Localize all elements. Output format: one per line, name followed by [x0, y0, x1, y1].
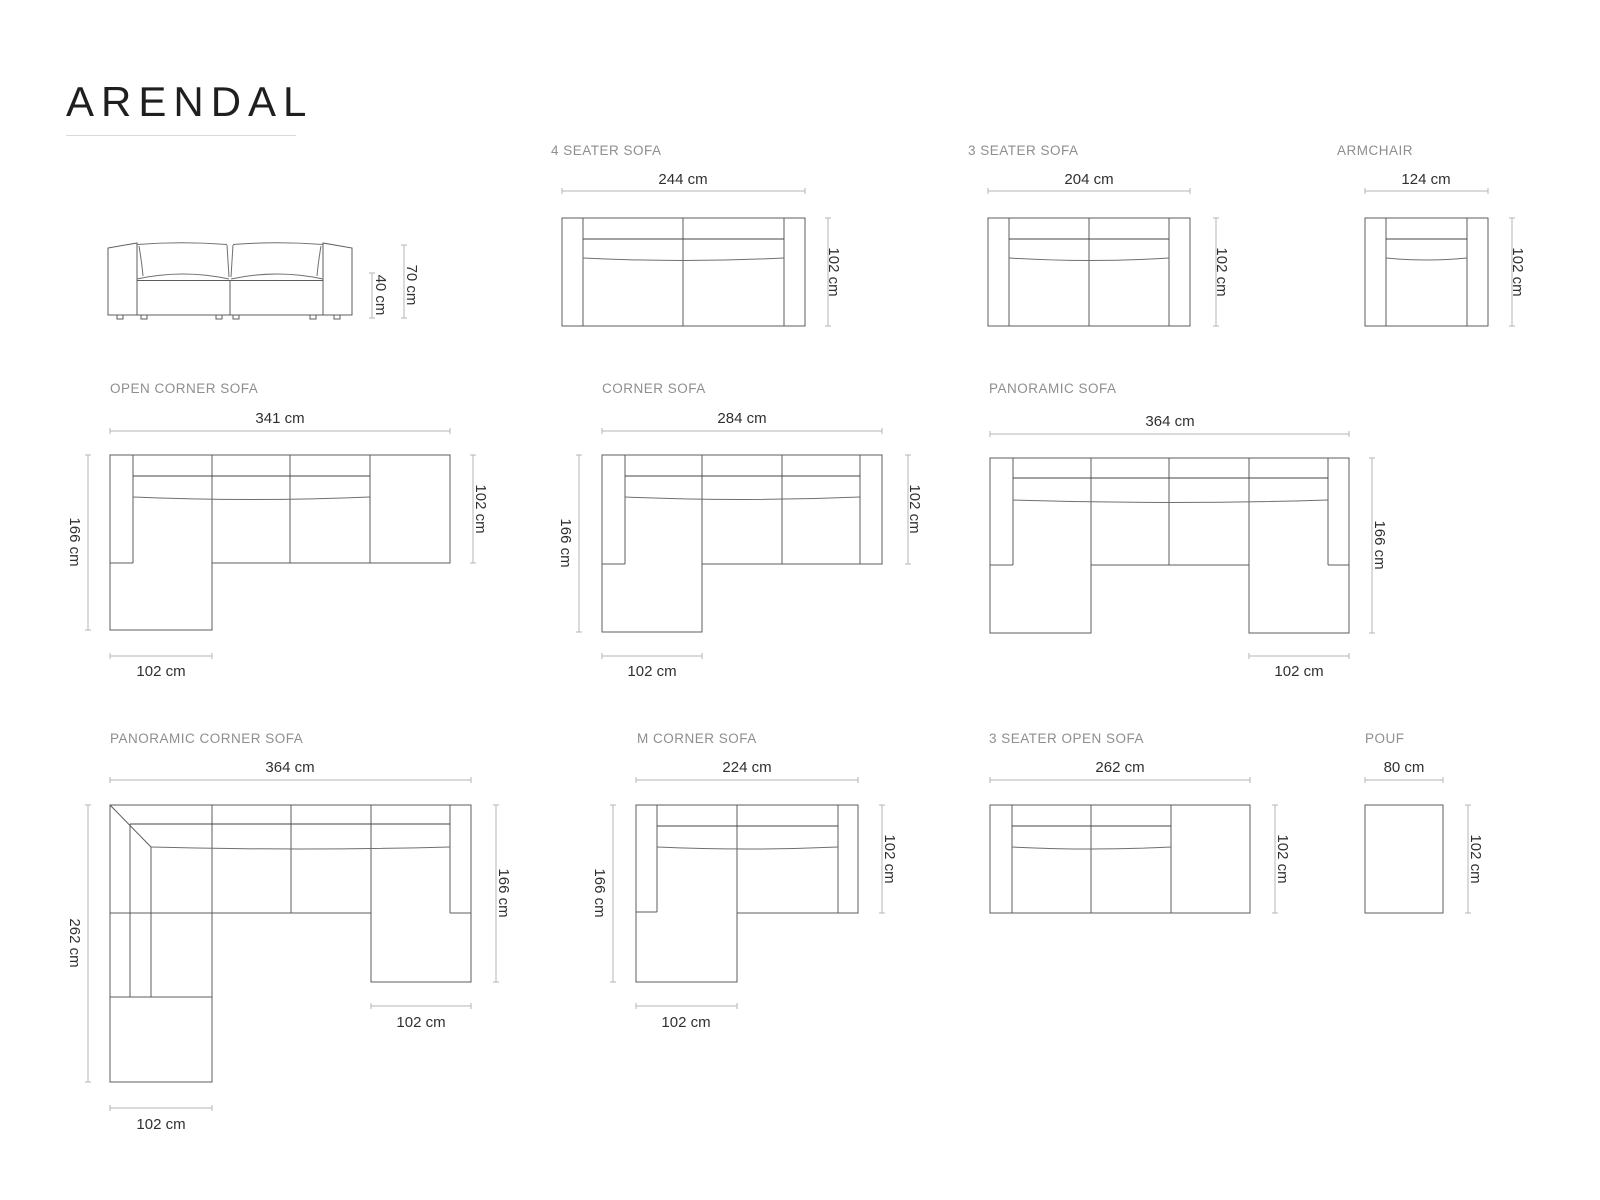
front-back-cushion-sides: [139, 246, 321, 276]
panoramic-corner-width-label: 364 cm: [265, 759, 314, 776]
diagram-front-elevation: 40 cm 70 cm: [108, 243, 420, 319]
corner-width-label: 284 cm: [717, 410, 766, 427]
three-seater-open-title: 3 SEATER OPEN SOFA: [989, 731, 1144, 746]
armchair-arms: [1386, 218, 1467, 326]
diagram-corner-sofa: CORNER SOFA 284 cm 166 cm 102 cm 102 cm: [557, 381, 923, 680]
panoramic-title: PANORAMIC SOFA: [989, 381, 1117, 396]
open-corner-chaise-label: 102 cm: [136, 663, 185, 680]
m-corner-outline: [636, 805, 858, 982]
open-corner-title: OPEN CORNER SOFA: [110, 381, 258, 396]
corner-depth-label: 102 cm: [906, 484, 923, 533]
corner-total-depth-label: 166 cm: [557, 518, 574, 567]
four-seater-arms-and-divider: [583, 218, 784, 326]
panoramic-arms-and-dividers: [990, 458, 1349, 565]
panoramic-corner-title: PANORAMIC CORNER SOFA: [110, 731, 303, 746]
m-corner-arms-and-divider: [636, 805, 838, 913]
panoramic-corner-left-wing-lines: [110, 805, 212, 997]
panoramic-corner-left-depth-dim-line: [85, 805, 91, 1082]
corner-seat-front-line: [625, 497, 860, 500]
panoramic-corner-width-dim-line: [110, 777, 471, 783]
panoramic-corner-left-depth-label: 262 cm: [66, 918, 83, 967]
corner-total-depth-dim-line: [576, 455, 582, 632]
panoramic-corner-bottom-chaise-label: 102 cm: [136, 1116, 185, 1133]
armchair-title: ARMCHAIR: [1337, 143, 1413, 158]
m-corner-chaise-dim-line: [636, 1003, 737, 1009]
panoramic-corner-right-chaise-dim-line: [371, 1003, 471, 1009]
front-seat-height-label: 40 cm: [372, 275, 389, 316]
m-corner-width-dim-line: [636, 777, 858, 783]
three-seater-width-dim-line: [988, 188, 1190, 194]
three-seater-open-depth-label: 102 cm: [1274, 834, 1291, 883]
three-seater-open-arm-and-dividers: [1012, 805, 1171, 913]
four-seater-width-label: 244 cm: [658, 171, 707, 188]
corner-arms-and-dividers: [602, 455, 860, 564]
panoramic-total-depth-label: 166 cm: [1371, 520, 1388, 569]
corner-title: CORNER SOFA: [602, 381, 706, 396]
three-seater-open-width-dim-line: [990, 777, 1250, 783]
four-seater-title: 4 SEATER SOFA: [551, 143, 662, 158]
open-corner-arm-and-dividers: [110, 455, 370, 563]
pouf-width-label: 80 cm: [1384, 759, 1425, 776]
diagram-m-corner-sofa: M CORNER SOFA 224 cm 166 cm 102 cm 102 c…: [591, 731, 898, 1031]
diagram-pouf: POUF 80 cm 102 cm: [1365, 731, 1484, 913]
corner-width-dim-line: [602, 428, 882, 434]
armchair-seat-front-line: [1386, 258, 1467, 260]
panoramic-corner-arm-and-dividers: [212, 805, 471, 913]
armchair-width-dim-line: [1365, 188, 1488, 194]
three-seater-depth-label: 102 cm: [1213, 247, 1230, 296]
open-corner-total-depth-dim-line: [85, 455, 91, 630]
diagram-four-seater-sofa: 4 SEATER SOFA 244 cm 102 cm: [551, 143, 842, 326]
three-seater-open-outline: [990, 805, 1250, 913]
spec-sheet-canvas: ARENDAL 40 cm 70 cm 4 SEATER SOFA 244 cm…: [0, 0, 1600, 1200]
corner-chaise-label: 102 cm: [627, 663, 676, 680]
m-corner-seat-front-line: [657, 847, 838, 849]
open-corner-width-dim-line: [110, 428, 450, 434]
front-seat-line: [137, 281, 323, 316]
open-corner-total-depth-label: 166 cm: [66, 517, 83, 566]
front-back-cushion-split: [227, 245, 233, 277]
front-total-height-label: 70 cm: [403, 265, 420, 306]
panoramic-width-dim-line: [990, 431, 1349, 437]
diagram-armchair: ARMCHAIR 124 cm 102 cm: [1337, 143, 1526, 326]
three-seater-title: 3 SEATER SOFA: [968, 143, 1079, 158]
open-corner-depth-label: 102 cm: [472, 484, 489, 533]
m-corner-title: M CORNER SOFA: [637, 731, 757, 746]
diagram-three-seater-sofa: 3 SEATER SOFA 204 cm 102 cm: [968, 143, 1230, 326]
pouf-width-dim-line: [1365, 777, 1443, 783]
open-corner-seat-front-line: [133, 497, 370, 500]
three-seater-width-label: 204 cm: [1064, 171, 1113, 188]
three-seater-open-width-label: 262 cm: [1095, 759, 1144, 776]
four-seater-depth-label: 102 cm: [825, 247, 842, 296]
panoramic-chaise-dim-line: [1249, 653, 1349, 659]
panoramic-width-label: 364 cm: [1145, 413, 1194, 430]
open-corner-chaise-dim-line: [110, 653, 212, 659]
panoramic-chaise-label: 102 cm: [1274, 663, 1323, 680]
front-seat-cushion-tops: [137, 274, 323, 279]
m-corner-total-depth-dim-line: [610, 805, 616, 982]
front-legs: [117, 315, 340, 319]
m-corner-depth-label: 102 cm: [881, 834, 898, 883]
m-corner-total-depth-label: 166 cm: [591, 868, 608, 917]
armchair-depth-label: 102 cm: [1509, 247, 1526, 296]
panoramic-corner-right-chaise-label: 102 cm: [396, 1014, 445, 1031]
front-left-arm: [108, 243, 137, 315]
front-back-cushion-tops: [137, 243, 323, 245]
pouf-outline: [1365, 805, 1443, 913]
three-seater-arms-and-divider: [1009, 218, 1169, 326]
four-seater-width-dim-line: [562, 188, 805, 194]
armchair-width-label: 124 cm: [1401, 171, 1450, 188]
corner-chaise-dim-line: [602, 653, 702, 659]
m-corner-chaise-label: 102 cm: [661, 1014, 710, 1031]
diagram-panoramic-sofa: PANORAMIC SOFA 364 cm 166 cm 102 cm: [989, 381, 1388, 680]
diagram-panoramic-corner-sofa: PANORAMIC CORNER SOFA 364 cm 262 cm 166 …: [66, 731, 512, 1133]
open-corner-outline: [110, 455, 450, 630]
diagram-three-seater-open-sofa: 3 SEATER OPEN SOFA 262 cm 102 cm: [989, 731, 1291, 913]
panoramic-corner-right-depth-label: 166 cm: [495, 868, 512, 917]
page-title: ARENDAL: [66, 78, 313, 125]
diagram-open-corner-sofa: OPEN CORNER SOFA 341 cm 166 cm 102 cm 10…: [66, 381, 489, 680]
page-header: ARENDAL: [66, 78, 313, 136]
pouf-title: POUF: [1365, 731, 1405, 746]
panoramic-seat-front-line: [1013, 500, 1328, 503]
arendal-dimension-sheet: ARENDAL 40 cm 70 cm 4 SEATER SOFA 244 cm…: [0, 0, 1600, 1200]
pouf-depth-label: 102 cm: [1467, 834, 1484, 883]
corner-outline: [602, 455, 882, 632]
m-corner-width-label: 224 cm: [722, 759, 771, 776]
armchair-outline: [1365, 218, 1488, 326]
open-corner-width-label: 341 cm: [255, 410, 304, 427]
panoramic-corner-seat-front-line: [151, 847, 450, 849]
panoramic-corner-bottom-chaise-dim-line: [110, 1105, 212, 1111]
front-right-arm: [323, 243, 352, 315]
